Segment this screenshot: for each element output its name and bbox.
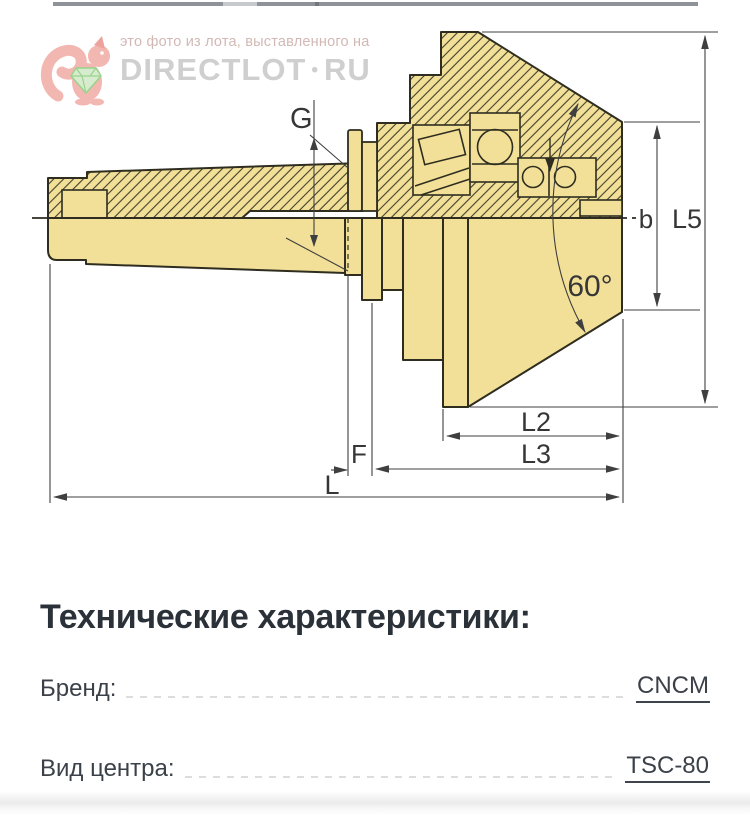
- watermark-brand: DIRECTLOT•RU: [120, 52, 371, 88]
- dotted-leader: [126, 696, 626, 698]
- label-f: F: [351, 439, 367, 469]
- ball-bearing: [470, 113, 520, 182]
- spec-value-center-type[interactable]: TSC-80: [625, 752, 710, 783]
- spindle-stub: [580, 200, 622, 216]
- label-l: L: [324, 470, 339, 500]
- spec-row-brand: Бренд: CNCM: [40, 672, 710, 703]
- cone-view: [468, 218, 622, 407]
- squirrel-logo-icon: [38, 30, 123, 106]
- label-g: G: [290, 103, 313, 135]
- watermark-caption: это фото из лота, выставленного на: [120, 34, 369, 50]
- spec-value-brand[interactable]: CNCM: [636, 672, 710, 703]
- taper-roller-bearing: [413, 125, 470, 195]
- spec-label: Вид центра:: [40, 755, 175, 783]
- label-b: b: [639, 204, 653, 234]
- body-view: [48, 218, 622, 407]
- label-l2: L2: [521, 407, 551, 437]
- tang-slot: [62, 190, 107, 218]
- brand-suffix: RU: [324, 52, 371, 87]
- label-l3: L3: [521, 439, 551, 469]
- label-angle: 60°: [567, 270, 612, 303]
- label-l5: L5: [672, 204, 702, 234]
- spec-row-center-type: Вид центра: TSC-80: [40, 752, 710, 783]
- dotted-leader: [185, 776, 616, 778]
- brand-separator: •: [311, 60, 319, 81]
- watermark: это фото из лота, выставленного на DIREC…: [38, 28, 358, 106]
- brand-name: DIRECTLOT: [120, 52, 306, 87]
- spec-label: Бренд:: [40, 675, 116, 703]
- specs-heading: Технические характеристики:: [40, 598, 531, 637]
- bottom-divider-shadow: [0, 791, 750, 815]
- flange-upper: [348, 130, 377, 211]
